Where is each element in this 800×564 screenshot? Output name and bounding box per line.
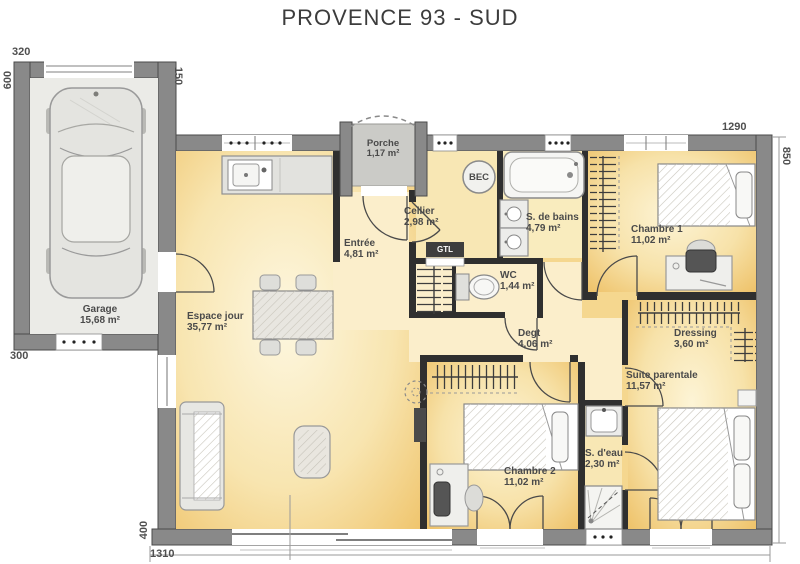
- gtl-label: GTL: [426, 242, 464, 257]
- dim-garage-depth: 600: [2, 60, 14, 100]
- bathtub: [504, 152, 584, 198]
- room-area: 1,44 m²: [500, 282, 534, 293]
- room-label-chambre1: Chambre 1 11,02 m²: [631, 225, 683, 246]
- room-label-sdb: S. de bains 4,79 m²: [526, 213, 579, 234]
- room-name: Dressing: [674, 329, 717, 340]
- room-label-chambre2: Chambre 2 11,02 m²: [504, 467, 556, 488]
- toilet: [456, 274, 499, 300]
- room-label-entree: Entrée 4,81 m²: [344, 239, 378, 260]
- room-label-degt: Degt 4,06 m²: [518, 329, 552, 350]
- room-name: WC: [500, 271, 534, 282]
- room-area: 11,57 m²: [626, 382, 698, 393]
- room-name: Entrée: [344, 239, 378, 250]
- room-label-espace-jour: Espace jour 35,77 m²: [187, 312, 244, 333]
- room-name: S. d'eau: [585, 449, 623, 460]
- room-name: Garage: [40, 305, 160, 316]
- room-name: Chambre 1: [631, 225, 683, 236]
- room-area: 35,77 m²: [187, 323, 244, 334]
- room-label-wc: WC 1,44 m²: [500, 271, 534, 292]
- room-area: 4,79 m²: [526, 224, 579, 235]
- room-name: Espace jour: [187, 312, 244, 323]
- car-top-view-icon: [46, 88, 146, 298]
- coffee-table: [294, 426, 330, 478]
- floor-plan-page: PROVENCE 93 - SUD Garage 15,68 m² Porche…: [0, 0, 800, 564]
- room-area: 11,02 m²: [504, 478, 556, 489]
- room-name: Chambre 2: [504, 467, 556, 478]
- water-heater-label: BEC: [463, 172, 495, 183]
- shower: [585, 486, 622, 529]
- room-name: Suite parentale: [626, 371, 698, 382]
- dim-total-width: 1310: [150, 548, 174, 560]
- room-area: 2,30 m²: [585, 460, 623, 471]
- sofa: [180, 402, 224, 510]
- double-vanity: [500, 200, 528, 256]
- kitchen-counter-sink: [222, 156, 332, 194]
- bed-chambre2: [464, 404, 578, 470]
- bed-suite: [658, 390, 756, 520]
- room-label-porche: Porche 1,17 m²: [350, 139, 416, 159]
- floor-plan-drawing: [0, 0, 800, 564]
- sdeau-sink: [586, 406, 622, 436]
- room-name: Degt: [518, 329, 552, 340]
- room-label-suite: Suite parentale 11,57 m²: [626, 371, 698, 392]
- bed-chambre1: [658, 164, 755, 226]
- room-area: 15,68 m²: [40, 316, 160, 327]
- tv-unit: [414, 408, 426, 442]
- dim-left-lower: 400: [138, 510, 150, 550]
- room-area: 3,60 m²: [674, 340, 717, 351]
- room-label-dressing: Dressing 3,60 m²: [674, 329, 717, 350]
- dim-house-width: 1290: [722, 121, 746, 133]
- plan-title: PROVENCE 93 - SUD: [0, 5, 800, 31]
- dim-garage-width: 320: [12, 46, 30, 58]
- room-area: 2,98 m²: [404, 218, 438, 229]
- room-area: 1,17 m²: [350, 149, 416, 159]
- room-area: 4,06 m²: [518, 340, 552, 351]
- dim-house-depth: 850: [780, 136, 792, 176]
- room-area: 4,81 m²: [344, 250, 378, 261]
- dim-garage-rear: 300: [10, 350, 28, 362]
- room-name: S. de bains: [526, 213, 579, 224]
- room-area: 11,02 m²: [631, 236, 683, 247]
- room-name: Cellier: [404, 207, 438, 218]
- room-label-sdeau: S. d'eau 2,30 m²: [585, 449, 623, 470]
- dim-garage-link: 150: [172, 56, 184, 96]
- room-label-garage: Garage 15,68 m²: [40, 305, 160, 326]
- room-label-cellier: Cellier 2,98 m²: [404, 207, 438, 228]
